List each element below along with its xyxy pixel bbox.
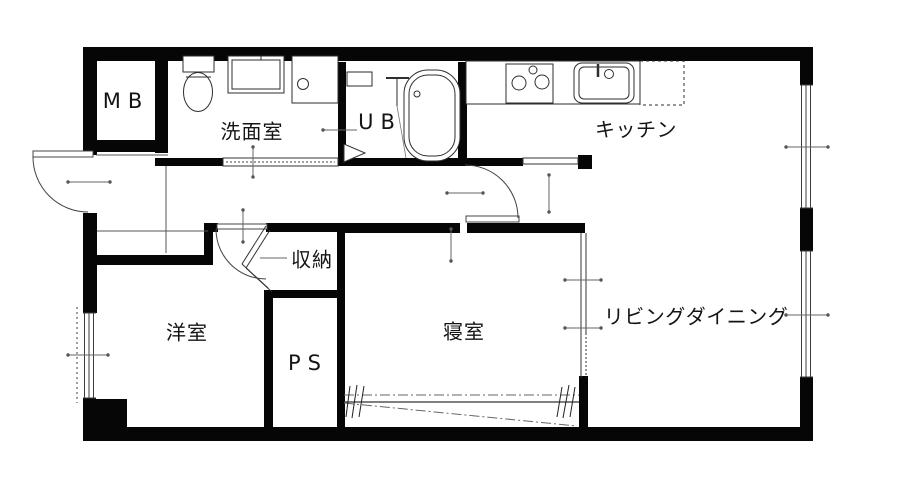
sink-icon xyxy=(574,63,634,103)
room-label-storage: 収納 xyxy=(291,244,333,273)
room-label-bedroom: 寝室 xyxy=(443,316,485,345)
room-label-western-room: 洋室 xyxy=(166,317,208,346)
window-right-lower xyxy=(799,251,814,377)
floorplan-canvas: MB 洗面室 UB キッチン 収納 洋室 PS 寝室 リビングダイニング xyxy=(0,0,900,491)
bedroom-living-partition xyxy=(581,233,586,378)
floor-lines xyxy=(96,155,208,253)
room-label-living-dining: リビングダイニング xyxy=(604,301,789,330)
bedroom-south-window xyxy=(344,385,579,426)
stove-icon xyxy=(506,64,553,103)
storage-folding-door xyxy=(242,226,272,292)
western-room-door xyxy=(216,224,267,279)
living-sliding-door xyxy=(523,158,578,164)
vanity-icon xyxy=(228,56,284,93)
toilet-icon xyxy=(183,56,214,112)
room-label-pipe-space: PS xyxy=(288,351,328,375)
kitchen-counter xyxy=(466,61,684,105)
room-label-unit-bath: UB xyxy=(358,110,402,134)
room-label-kitchen: キッチン xyxy=(595,114,677,143)
room-label-washroom: 洗面室 xyxy=(221,116,284,145)
room-label-mb: MB xyxy=(103,89,150,113)
fixtures xyxy=(183,56,684,161)
washer-pan-icon xyxy=(292,56,338,103)
refrigerator-space xyxy=(640,61,684,105)
floorplan-drawing xyxy=(0,0,900,491)
washroom-sliding-door xyxy=(223,158,338,166)
bedroom-door-jamb xyxy=(460,223,467,233)
